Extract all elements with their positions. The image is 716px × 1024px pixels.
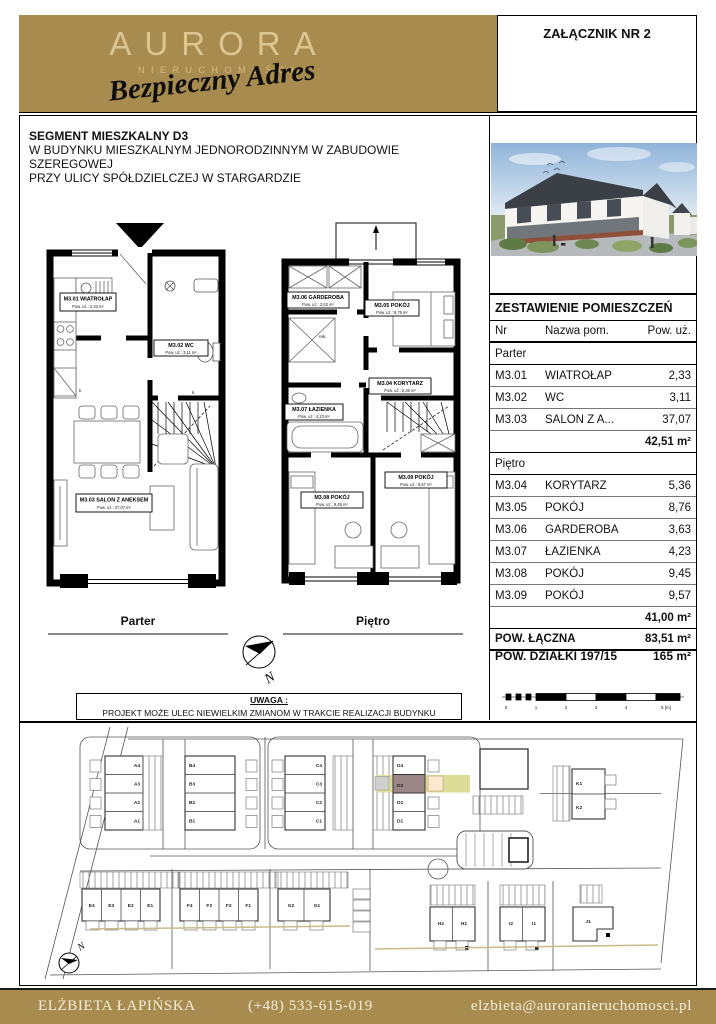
svg-text:I1: I1 — [532, 921, 536, 927]
table-row: M3.01 WIATROŁAP 2,33 — [490, 365, 696, 387]
svg-text:M3.09 POKÓJ: M3.09 POKÓJ — [398, 473, 433, 481]
room-label-m305: M3.05 POKÓJ Pow. uż.: 8,76 m² — [365, 300, 419, 316]
svg-text:M3.03 SALON Z ANEKSEM: M3.03 SALON Z ANEKSEM — [80, 498, 149, 504]
svg-text:E4: E4 — [89, 903, 95, 909]
table-row: M3.07 ŁAZIENKA 4,23 — [490, 541, 696, 563]
svg-text:D3: D3 — [397, 783, 403, 789]
svg-text:H2: H2 — [438, 921, 444, 927]
agent-email: elzbieta@auroranieruchomosci.pl — [471, 998, 692, 1015]
svg-text:M3.05 POKÓJ: M3.05 POKÓJ — [374, 301, 409, 309]
header-divider — [19, 112, 697, 113]
brand-banner: AURORA NIERUCHOMOŚCI Bezpieczny Adres — [19, 15, 497, 112]
svg-text:4: 4 — [625, 705, 628, 710]
site-compass-icon: N — [59, 940, 88, 973]
caption-pietro: Piętro — [283, 614, 463, 635]
svg-text:D4: D4 — [397, 763, 403, 769]
building-block-h: H2 H1 — [430, 885, 475, 950]
table-row: M3.08 POKÓJ 9,45 — [490, 563, 696, 585]
svg-text:Pow. uż.: 2,33 m²: Pow. uż.: 2,33 m² — [72, 304, 104, 309]
site-plan-frame: A4 A3 A2 A1 B4 B3 B2 B1 C4 C3 C2 C1 — [19, 722, 697, 986]
note-text: PROJEKT MOŻE ULEC NIEWIELKIM ZMIANOM W T… — [77, 707, 461, 720]
plot-label: POW. DZIAŁKI 197/15 — [495, 649, 635, 663]
svg-text:M3.02 WC: M3.02 WC — [168, 343, 194, 349]
svg-text:2: 2 — [565, 705, 568, 710]
svg-text:E2: E2 — [128, 903, 134, 909]
room-label-m304: M3.04 KORYTARZ Pow. uż.: 5,36 m² — [369, 378, 431, 394]
svg-text:C2: C2 — [316, 800, 322, 806]
building-block-c: C4 C3 C2 C1 — [272, 756, 353, 830]
svg-text:Pow. uż.: 5,36 m²: Pow. uż.: 5,36 m² — [384, 388, 416, 393]
svg-text:E3: E3 — [108, 903, 114, 909]
svg-text:1: 1 — [535, 705, 538, 710]
svg-text:F1: F1 — [245, 903, 251, 909]
document-title-block: SEGMENT MIESZKALNY D3 W BUDYNKU MIESZKAL… — [29, 129, 479, 185]
plot-area-row: POW. DZIAŁKI 197/15 165 m² — [490, 649, 696, 663]
svg-text:J1: J1 — [585, 919, 591, 925]
room-label-m309: M3.09 POKÓJ Pow. uż.: 9,57 m² — [385, 472, 447, 488]
section-pietro: Piętro — [490, 453, 696, 475]
building-block-d: D4 D3 D2 D1 — [373, 756, 470, 830]
building-block-a: A4 A3 A2 A1 — [90, 756, 163, 830]
svg-text:E1: E1 — [147, 903, 153, 909]
svg-text:A4: A4 — [134, 763, 140, 769]
note-box: UWAGA : PROJEKT MOŻE ULEC NIEWIELKIM ZMI… — [76, 693, 462, 720]
svg-text:G2: G2 — [288, 903, 295, 909]
subtotal-parter: 42,51 m² — [490, 431, 696, 453]
floor-plan-parter: k k — [46, 220, 226, 590]
table-header-row: Nr Nazwa pom. Pow. uż. — [490, 321, 696, 343]
note-title: UWAGA : — [77, 694, 461, 707]
attachment-label-cell: ZAŁĄCZNIK NR 2 — [497, 15, 697, 112]
svg-text:Pow. uż.: 9,45 m²: Pow. uż.: 9,45 m² — [316, 502, 348, 507]
svg-text:M3.07 ŁAZIENKA: M3.07 ŁAZIENKA — [292, 407, 336, 413]
svg-text:B3: B3 — [189, 782, 195, 788]
svg-text:M3.04 KORYTARZ: M3.04 KORYTARZ — [377, 381, 424, 387]
floor-plan-pietro: rek. k — [281, 220, 461, 590]
site-plan: A4 A3 A2 A1 B4 B3 B2 B1 C4 C3 C2 C1 — [20, 723, 695, 983]
svg-text:C3: C3 — [316, 782, 322, 788]
svg-text:C1: C1 — [316, 819, 322, 825]
svg-text:A1: A1 — [134, 819, 140, 825]
scale-bar: 0 1 2 3 4 5 [m] — [498, 688, 688, 714]
room-label-m308: M3.08 POKÓJ Pow. uż.: 9,45 m² — [301, 492, 363, 508]
svg-text:I2: I2 — [509, 921, 513, 927]
svg-text:D2: D2 — [397, 800, 403, 806]
svg-text:B4: B4 — [189, 763, 195, 769]
compass-icon: N — [232, 632, 288, 694]
entrance-marker-icon — [116, 223, 164, 249]
svg-text:M3.06 GARDEROBA: M3.06 GARDEROBA — [292, 295, 344, 301]
svg-text:F3: F3 — [206, 903, 212, 909]
svg-text:Pow. uż.: 3,63 m²: Pow. uż.: 3,63 m² — [302, 302, 334, 307]
plot-edge-line — [375, 945, 658, 949]
col-area: Pow. uż. — [635, 325, 691, 337]
svg-text:Pow. uż.: 3,11 m²: Pow. uż.: 3,11 m² — [165, 350, 197, 355]
room-label-m307: M3.07 ŁAZIENKA Pow. uż.: 4,23 m² — [285, 404, 343, 420]
segment-subtitle-2: PRZY ULICY SPÓŁDZIELCZEJ W STARGARDZIE — [29, 171, 479, 185]
building-block-e: E4 E3 E2 E1 — [80, 872, 180, 930]
svg-text:K2: K2 — [576, 805, 582, 811]
room-label-m306: M3.06 GARDEROBA Pow. uż.: 3,63 m² — [287, 292, 349, 308]
agent-name: ELŻBIETA ŁAPIŃSKA — [38, 998, 196, 1015]
rek-annotation: rek. — [319, 334, 327, 339]
building-block-g: G2 G1 — [276, 872, 348, 930]
svg-text:G1: G1 — [314, 903, 321, 909]
col-name: Nazwa pom. — [545, 325, 635, 337]
svg-text:N: N — [261, 669, 278, 688]
highlight-garden-square — [428, 776, 443, 791]
svg-text:B1: B1 — [189, 819, 195, 825]
table-row: M3.03 SALON Z A... 37,07 — [490, 409, 696, 431]
svg-text:Pow. uż.: 8,76 m²: Pow. uż.: 8,76 m² — [376, 310, 408, 315]
segment-title: SEGMENT MIESZKALNY D3 — [29, 129, 479, 143]
table-row: M3.06 GARDEROBA 3,63 — [490, 519, 696, 541]
svg-text:F4: F4 — [187, 903, 193, 909]
building-block-b: B4 B3 B2 B1 — [185, 756, 257, 830]
svg-text:B2: B2 — [189, 800, 195, 806]
room-label-m301: M3.01 WIATROŁAP Pow. uż.: 2,33 m² — [60, 293, 116, 311]
table-row: M3.04 KORYTARZ 5,36 — [490, 475, 696, 497]
table-row: M3.02 WC 3,11 — [490, 387, 696, 409]
svg-text:A2: A2 — [134, 800, 140, 806]
plot-value: 165 m² — [635, 649, 691, 663]
svg-text:5 [m]: 5 [m] — [661, 705, 671, 710]
svg-text:A3: A3 — [134, 782, 140, 788]
svg-text:3: 3 — [595, 705, 598, 710]
service-building — [480, 749, 528, 789]
svg-text:H1: H1 — [461, 921, 467, 927]
room-label-m303: M3.03 SALON Z ANEKSEM Pow. uż.: 37,07 m² — [76, 494, 152, 512]
svg-text:Pow. uż.: 37,07 m²: Pow. uż.: 37,07 m² — [97, 505, 132, 510]
building-block-j: J1 — [573, 885, 613, 941]
parking-strip — [473, 796, 523, 814]
section-parter: Parter — [490, 343, 696, 365]
svg-text:D1: D1 — [397, 819, 403, 825]
contact-footer: ELŻBIETA ŁAPIŃSKA (+48) 533-615-019 elzb… — [0, 988, 716, 1024]
parking-lot — [457, 831, 533, 869]
svg-text:Pow. uż.: 4,23 m²: Pow. uż.: 4,23 m² — [298, 414, 330, 419]
main-frame: SEGMENT MIESZKALNY D3 W BUDYNKU MIESZKAL… — [19, 115, 697, 722]
col-nr: Nr — [495, 325, 545, 337]
building-block-f: F4 F3 F2 F1 — [178, 872, 278, 930]
caption-parter: Parter — [48, 614, 228, 635]
room-summary-table: ZESTAWIENIE POMIESZCZEŃ Nr Nazwa pom. Po… — [490, 293, 696, 651]
subtotal-pietro: 41,00 m² — [490, 607, 696, 629]
building-block-i: I2 I1 — [500, 885, 545, 950]
table-row: M3.05 POKÓJ 8,76 — [490, 497, 696, 519]
svg-text:C4: C4 — [316, 763, 322, 769]
svg-text:N: N — [75, 940, 88, 954]
svg-text:M3.01 WIATROŁAP: M3.01 WIATROŁAP — [64, 297, 113, 303]
estate-render-illustration — [491, 143, 697, 256]
svg-text:F2: F2 — [226, 903, 232, 909]
svg-text:Pow. uż.: 9,57 m²: Pow. uż.: 9,57 m² — [400, 482, 432, 487]
segment-subtitle-1: W BUDYNKU MIESZKALNYM JEDNORODZINNYM W Z… — [29, 143, 479, 171]
svg-text:0: 0 — [505, 705, 508, 710]
room-label-m302: M3.02 WC Pow. uż.: 3,11 m² — [154, 340, 208, 356]
attachment-label: ZAŁĄCZNIK NR 2 — [543, 26, 651, 41]
garage-row — [353, 889, 370, 932]
svg-text:K1: K1 — [576, 781, 582, 787]
svg-text:M3.08 POKÓJ: M3.08 POKÓJ — [314, 493, 349, 501]
table-title: ZESTAWIENIE POMIESZCZEŃ — [490, 293, 696, 321]
table-row: M3.09 POKÓJ 9,57 — [490, 585, 696, 607]
total-row: POW. ŁĄCZNA 83,51 m² — [490, 629, 696, 651]
agent-phone: (+48) 533-615-019 — [248, 998, 373, 1015]
